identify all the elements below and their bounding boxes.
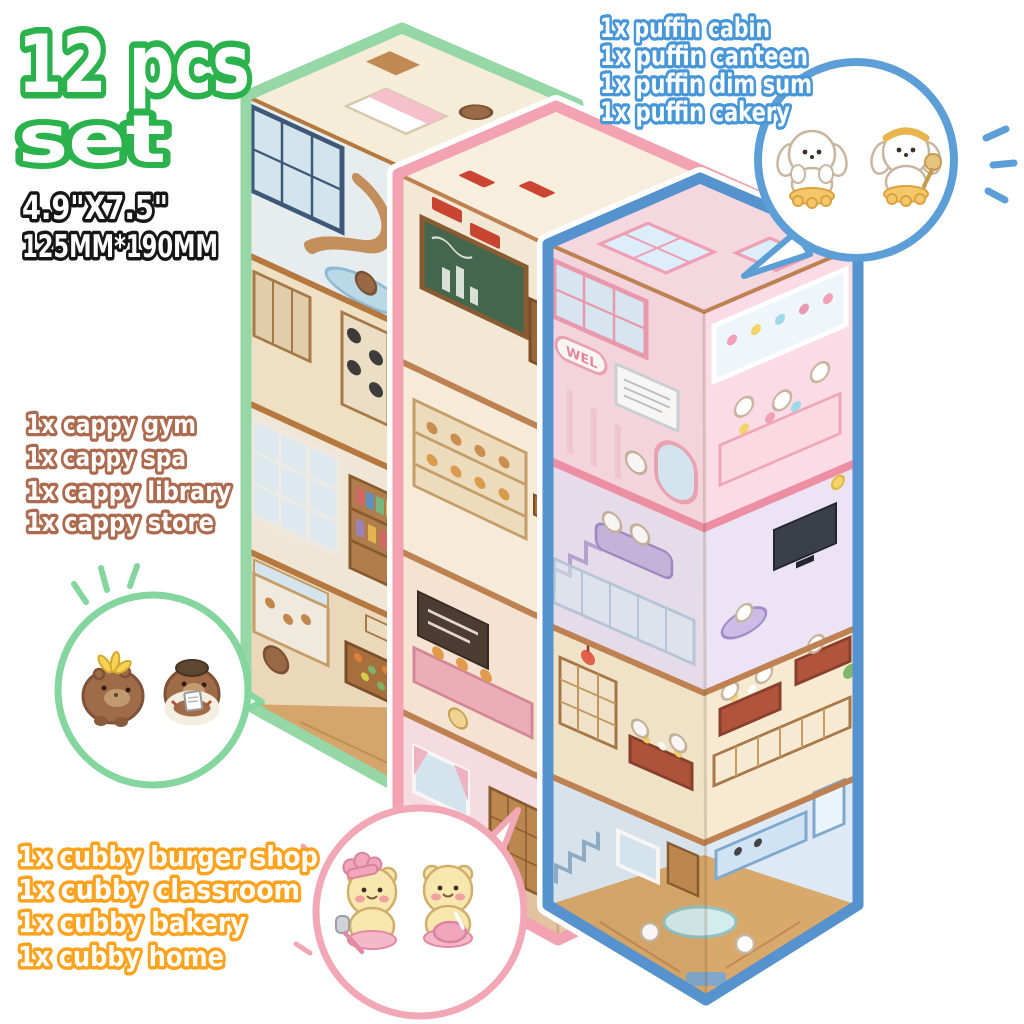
puffin-list-item-1: 1x puffin cabin	[600, 13, 770, 44]
wooden-spoon-icon	[925, 154, 941, 170]
puffin-list-item-3: 1x puffin dim sum	[600, 69, 812, 100]
sparkle-icon	[101, 568, 107, 590]
accent-mark-icon	[296, 944, 310, 953]
accent-mark-icon	[988, 191, 1005, 200]
cappy-list-item-3: 1x cappy library	[26, 477, 231, 507]
swim-cap-icon	[176, 660, 208, 676]
sparkle-icon	[74, 584, 86, 602]
product-illustration: WEL	[0, 0, 1024, 1024]
puffin-sticker-sheet: WEL	[548, 178, 858, 1000]
puffin-list-item-4: 1x puffin cakery	[600, 97, 790, 128]
sparkle-icon	[130, 566, 137, 586]
cubby-list-item-2: 1x cubby classroom	[18, 873, 300, 906]
size-inches-label: 4.9"X7.5"	[22, 188, 168, 227]
cubby-speech-bubble	[296, 808, 524, 1016]
cappy-speech-bubble	[58, 566, 262, 785]
accent-mark-icon	[993, 163, 1014, 165]
puffin-sheet-art: WEL	[548, 178, 858, 1000]
size-mm-label: 125MM*190MM	[22, 229, 218, 265]
cappy-list-item-4: 1x cappy store	[26, 508, 214, 538]
cappy-list-item-2: 1x cappy spa	[26, 443, 186, 473]
cubby-baker-bear-icon	[424, 866, 472, 947]
puffin-list-item-2: 1x puffin canteen	[600, 41, 808, 72]
title-line-2: set	[18, 101, 166, 178]
spatula-icon	[336, 916, 349, 933]
product-image: WEL	[0, 0, 1024, 1024]
cubby-list-item-4: 1x cubby home	[18, 940, 224, 973]
puffin-dog-icon	[736, 935, 754, 953]
cappy-list-item-1: 1x cappy gym	[26, 410, 196, 440]
cubby-list-item-3: 1x cubby bakery	[18, 906, 246, 939]
accent-mark-icon	[986, 129, 1006, 138]
cubby-list-item-1: 1x cubby burger shop	[18, 840, 318, 873]
title-line-1: 12 pcs	[18, 18, 250, 111]
